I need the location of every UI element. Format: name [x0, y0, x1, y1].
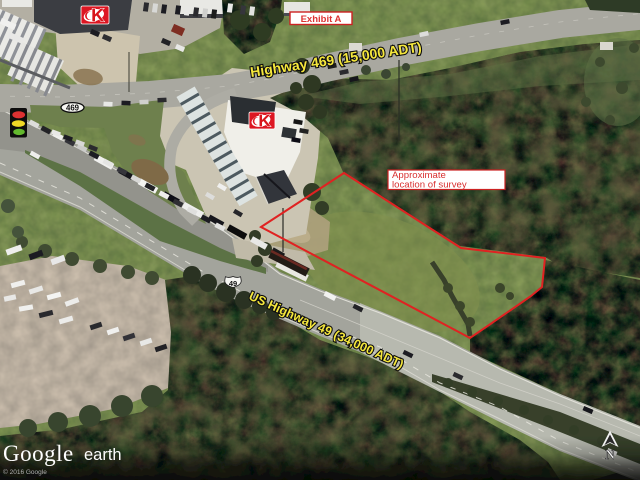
svg-text:Exhibit A: Exhibit A: [301, 14, 342, 25]
svg-text:K: K: [258, 111, 271, 131]
svg-text:469: 469: [66, 103, 80, 112]
svg-text:location of survey: location of survey: [392, 180, 467, 191]
svg-text:49: 49: [229, 279, 237, 288]
svg-text:K: K: [91, 4, 105, 25]
svg-text:earth: earth: [84, 446, 122, 464]
svg-text:N: N: [605, 448, 615, 463]
svg-text:Google: Google: [3, 441, 74, 466]
svg-text:© 2016 Google: © 2016 Google: [3, 468, 47, 476]
